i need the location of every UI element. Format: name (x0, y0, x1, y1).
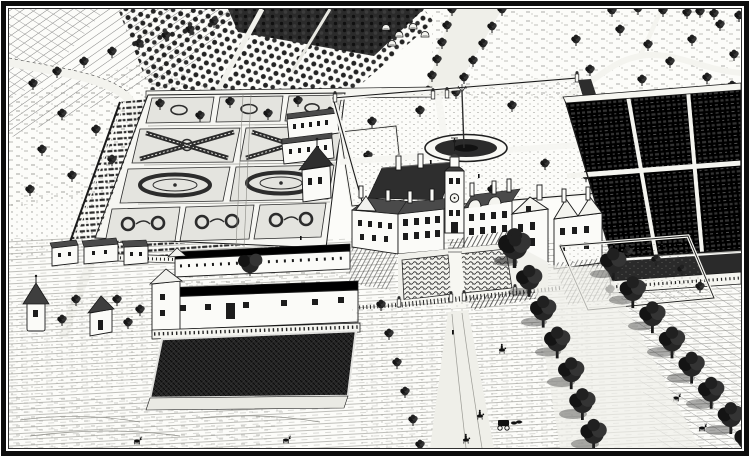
parterre-panel (402, 255, 452, 300)
fountain-basin (425, 135, 507, 162)
service-courtyard (150, 244, 360, 339)
cottages (50, 238, 148, 266)
estate-engraving: Bird's-eye view engraving of an English … (0, 0, 750, 461)
parterre-panel (458, 249, 512, 293)
parterre-row-scroll (105, 203, 326, 243)
engraving-canvas: Bird's-eye view engraving of an English … (0, 0, 750, 461)
pond (146, 331, 356, 410)
